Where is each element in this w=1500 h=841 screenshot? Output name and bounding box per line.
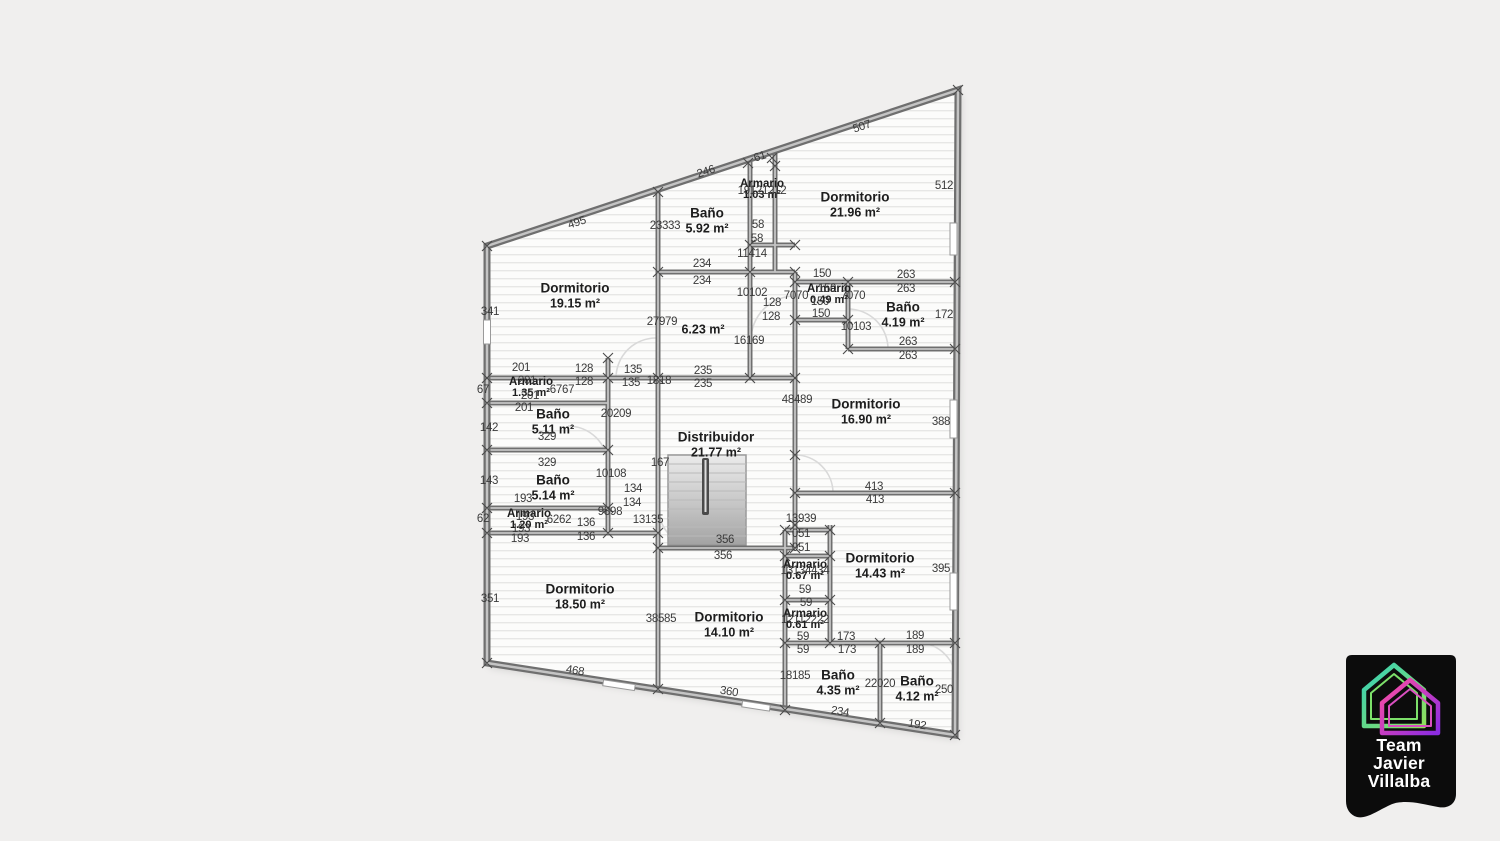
floorplan-canvas: Dormitorio 19.15 m² Baño 5.92 m² Armario…	[0, 0, 1500, 841]
brand-text: Team Javier Villalba	[1340, 736, 1458, 790]
brand-line-1: Team	[1340, 736, 1458, 754]
brand-line-3: Villalba	[1340, 772, 1458, 790]
brand-badge: Team Javier Villalba	[1340, 650, 1462, 825]
floor-area	[487, 90, 958, 735]
staircase	[668, 455, 746, 545]
floorplan-drawing	[0, 0, 1500, 841]
brand-line-2: Javier	[1340, 754, 1458, 772]
